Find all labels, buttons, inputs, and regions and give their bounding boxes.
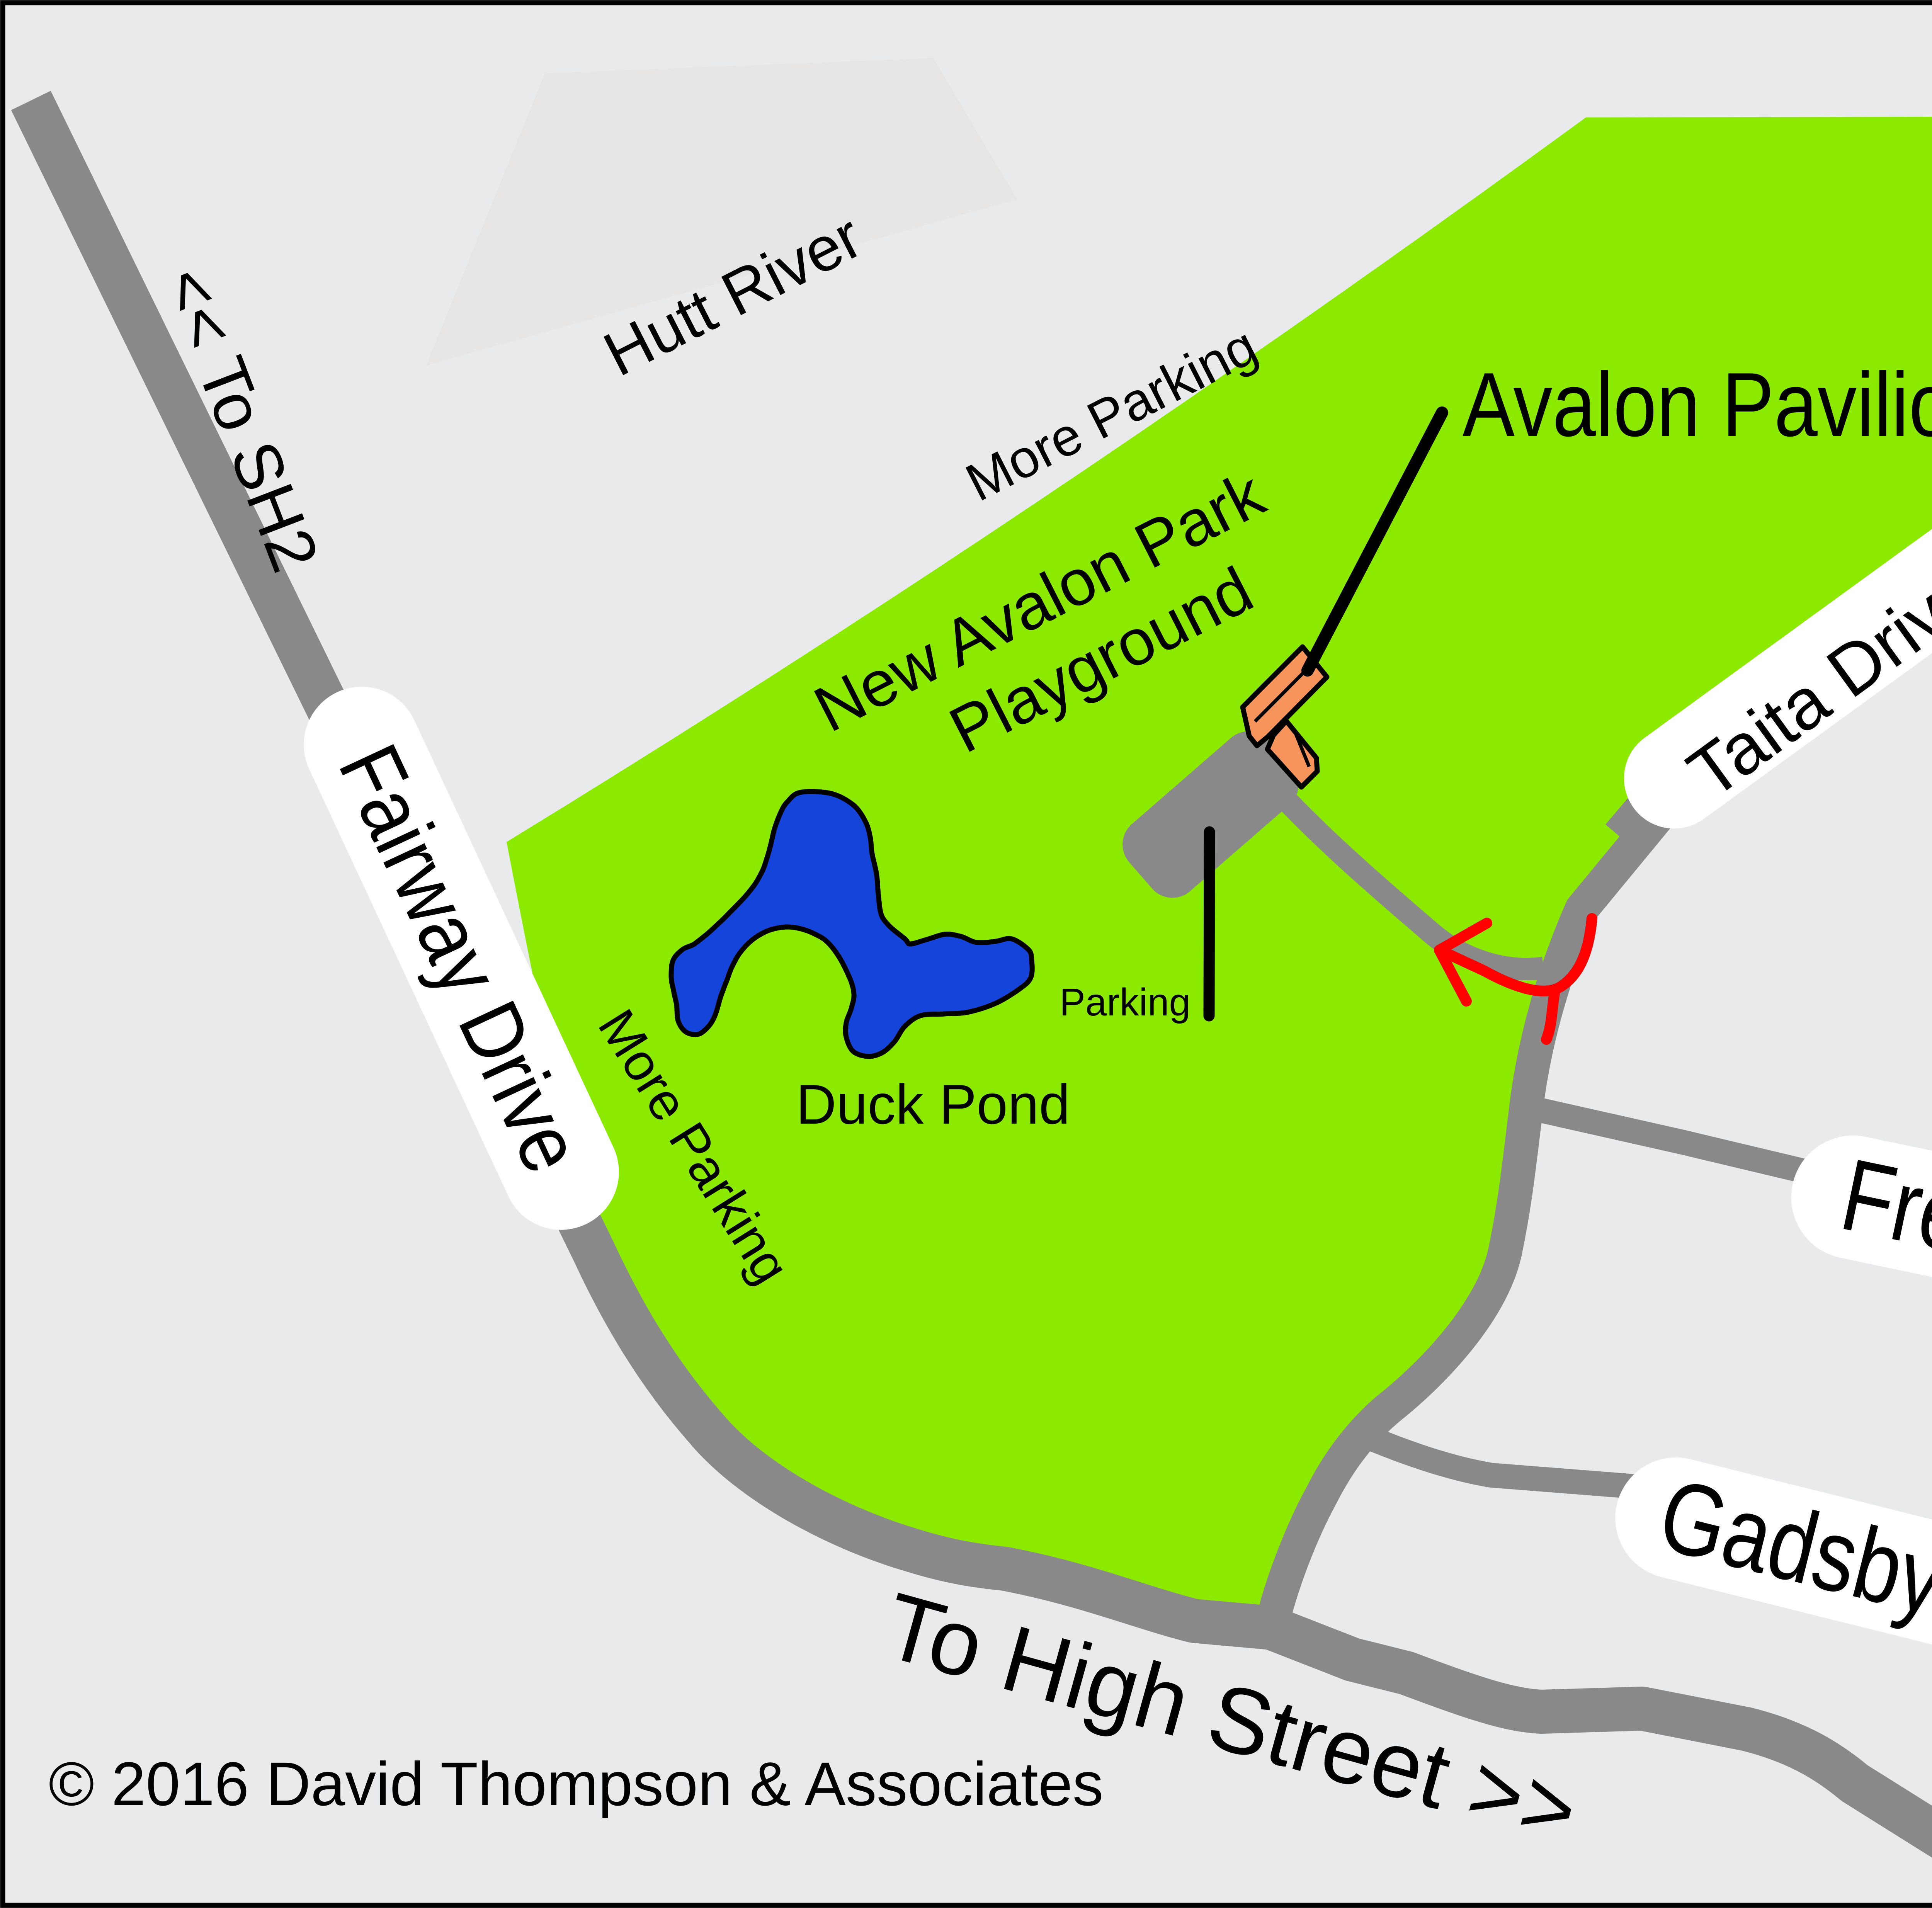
svg-text:Avalon Pavilion: Avalon Pavilion	[1463, 354, 1932, 455]
svg-text:Parking: Parking	[1060, 981, 1190, 1024]
svg-text:© 2016 David Thompson & Associ: © 2016 David Thompson & Associates	[49, 1749, 1104, 1818]
svg-text:Duck Pond: Duck Pond	[796, 1073, 1070, 1136]
